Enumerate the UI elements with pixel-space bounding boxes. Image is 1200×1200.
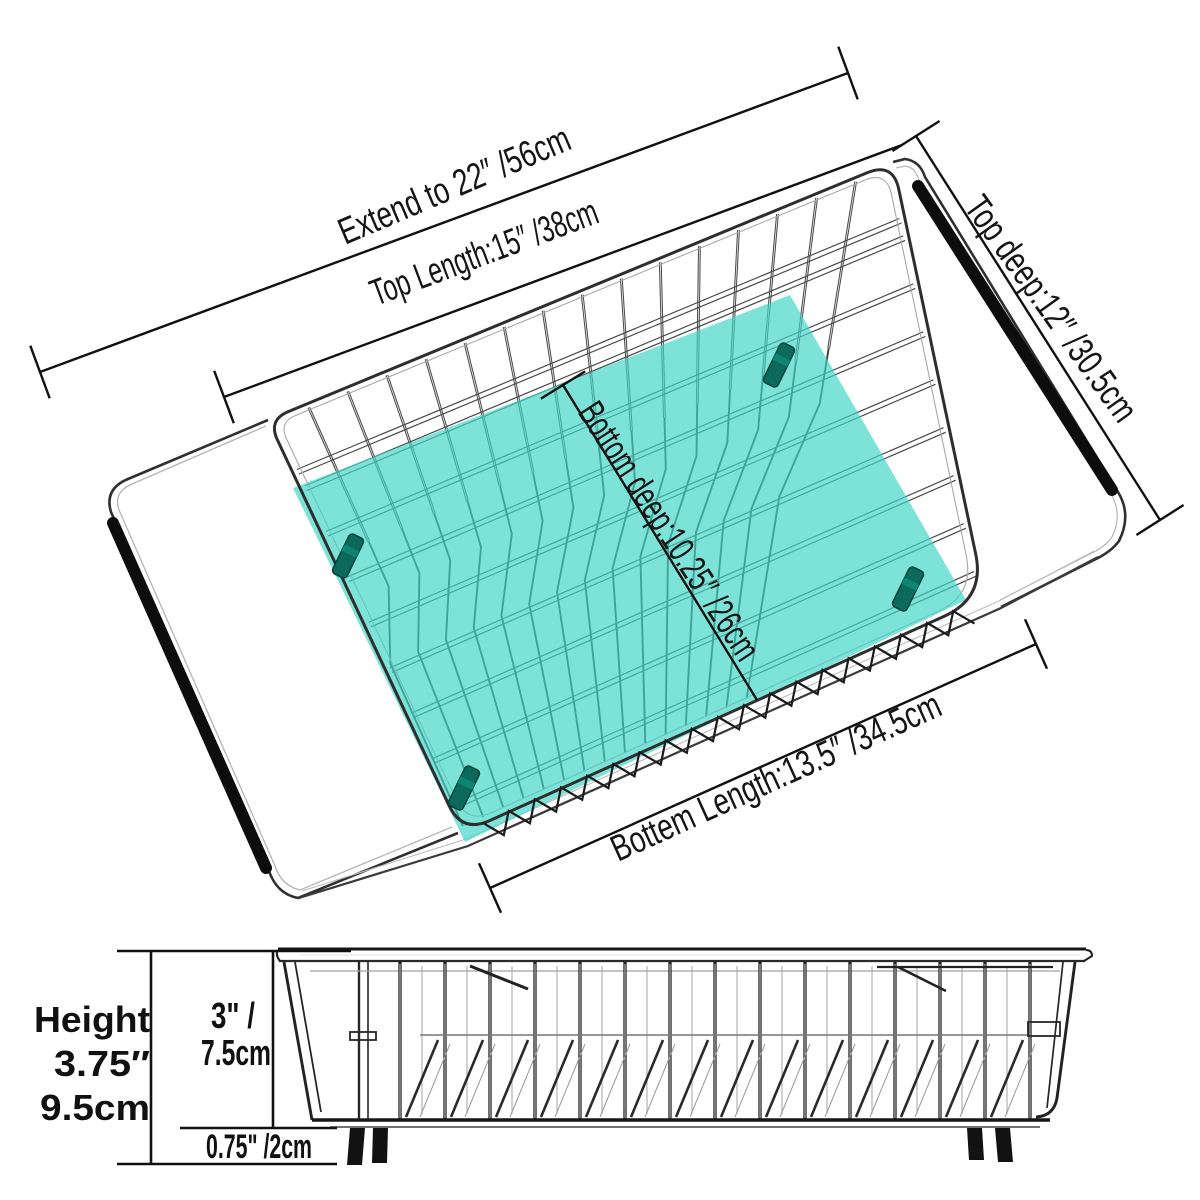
svg-text:Height: Height: [34, 999, 150, 1040]
svg-text:3" /: 3" /: [211, 995, 255, 1036]
svg-text:9.5cm: 9.5cm: [40, 1087, 150, 1128]
svg-text:0.75" /2cm: 0.75" /2cm: [206, 1128, 312, 1166]
svg-text:7.5cm: 7.5cm: [201, 1032, 271, 1073]
svg-text:3.75″: 3.75″: [54, 1043, 150, 1084]
